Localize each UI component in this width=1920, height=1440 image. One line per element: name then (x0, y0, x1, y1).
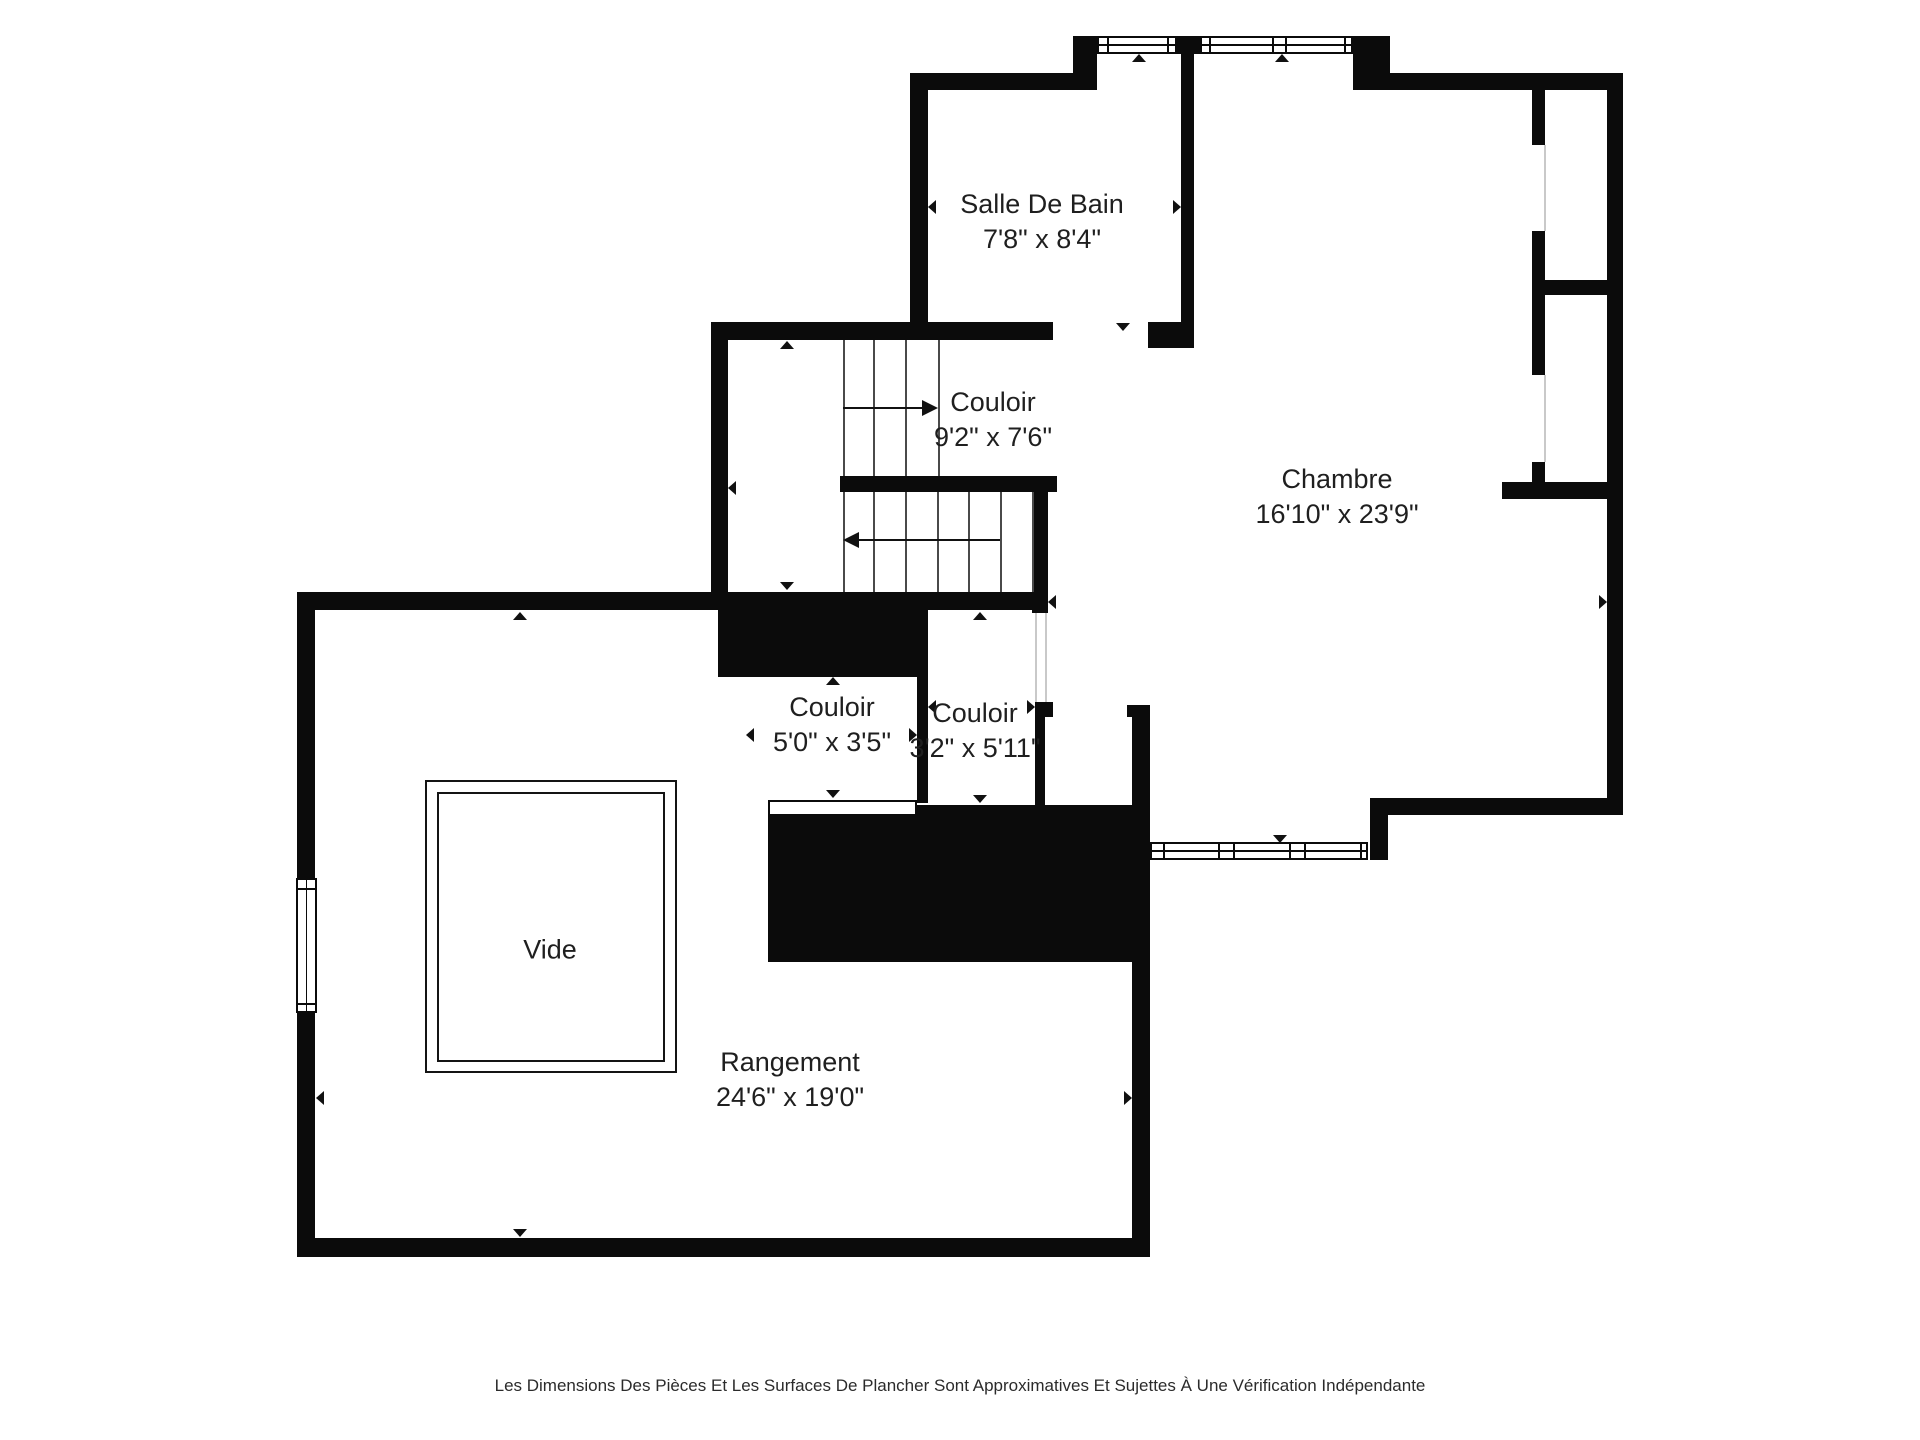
dimension-marker-up (780, 341, 794, 349)
wall (1353, 73, 1623, 90)
window (1150, 842, 1368, 860)
room-label-vide: Vide (523, 933, 577, 968)
room-dimensions: 24'6" x 19'0" (716, 1080, 864, 1115)
window-mullion (298, 1003, 315, 1005)
stair-tread (1000, 492, 1002, 592)
window-mullion (1152, 850, 1366, 852)
room-label-couloir-escalier: Couloir9'2" x 7'6" (934, 385, 1052, 455)
window-mullion (1304, 844, 1306, 858)
window-mullion (1218, 844, 1220, 858)
room-name: Couloir (909, 696, 1040, 731)
window (1097, 36, 1177, 54)
dimension-marker-up (513, 612, 527, 620)
dimension-marker-up (826, 677, 840, 685)
window-mullion (1209, 38, 1211, 52)
stair-direction-line (857, 539, 1000, 541)
room-label-salle-de-bain: Salle De Bain7'8" x 8'4" (960, 187, 1124, 257)
room-name: Chambre (1255, 462, 1418, 497)
dimension-marker-up (1275, 54, 1289, 62)
room-name: Couloir (934, 385, 1052, 420)
door-opening-line (1035, 613, 1037, 702)
room-dimensions: 5'0" x 3'5" (773, 725, 891, 760)
dimension-marker-down (1116, 323, 1130, 331)
wall (718, 605, 928, 677)
dimension-marker-left (1048, 595, 1056, 609)
wall (1502, 482, 1623, 499)
room-name: Rangement (716, 1045, 864, 1080)
wall (1532, 462, 1545, 482)
stair-tread (937, 492, 939, 592)
wall (711, 322, 728, 610)
wall (297, 1238, 1148, 1257)
wall (711, 322, 1053, 340)
room-label-chambre: Chambre16'10" x 23'9" (1255, 462, 1418, 532)
dimension-marker-left (728, 481, 736, 495)
disclaimer-text: Les Dimensions Des Pièces Et Les Surface… (0, 1376, 1920, 1396)
dimension-marker-left (928, 200, 936, 214)
room-label-couloir-centre: Couloir5'0" x 3'5" (773, 690, 891, 760)
wall (1532, 88, 1545, 145)
dimension-marker-down (513, 1229, 527, 1237)
dimension-marker-up (973, 612, 987, 620)
stair-tread (873, 492, 875, 592)
stair-tread (905, 492, 907, 592)
room-dimensions: 16'10" x 23'9" (1255, 497, 1418, 532)
dimension-marker-left (316, 1091, 324, 1105)
room-name: Vide (523, 933, 577, 968)
room-label-couloir-est: Couloir3'2" x 5'11" (909, 696, 1040, 766)
window-mullion (1289, 844, 1291, 858)
wall (768, 805, 1148, 962)
room-dimensions: 9'2" x 7'6" (934, 420, 1052, 455)
window-mullion (1285, 38, 1287, 52)
window-mullion (298, 888, 315, 890)
window-mullion (1202, 44, 1351, 46)
dimension-marker-down (973, 795, 987, 803)
door-opening-line (1544, 375, 1546, 462)
door-opening-line (1045, 613, 1047, 702)
wall (1177, 36, 1200, 54)
dimension-marker-up (1132, 54, 1146, 62)
cased-opening (768, 800, 917, 816)
room-label-rangement: Rangement24'6" x 19'0" (716, 1045, 864, 1115)
window-mullion (1163, 844, 1165, 858)
window-mullion (1099, 44, 1175, 46)
window (1200, 36, 1353, 54)
window-mullion (1167, 38, 1169, 52)
window (296, 878, 317, 1013)
dimension-marker-down (1273, 835, 1287, 843)
window-mullion (1107, 38, 1109, 52)
window-mullion (1344, 38, 1346, 52)
room-name: Couloir (773, 690, 891, 725)
wall (1073, 36, 1097, 90)
wall (1370, 798, 1388, 860)
dimension-marker-left (746, 728, 754, 742)
window-mullion (1233, 844, 1235, 858)
window-mullion (1360, 844, 1362, 858)
stair-direction-line (843, 407, 924, 409)
wall (910, 73, 1073, 90)
dimension-marker-right (1124, 1091, 1132, 1105)
wall (1545, 280, 1610, 295)
wall (910, 73, 928, 340)
dimension-marker-right (1599, 595, 1607, 609)
wall (1388, 798, 1623, 815)
floorplan: Salle De Bain7'8" x 8'4"Couloir9'2" x 7'… (0, 0, 1920, 1440)
door-opening-line (1544, 145, 1546, 231)
wall (840, 476, 1057, 492)
wall (1532, 231, 1545, 375)
room-dimensions: 7'8" x 8'4" (960, 222, 1124, 257)
dimension-marker-down (826, 790, 840, 798)
wall (1132, 705, 1150, 1257)
wall (1181, 54, 1194, 348)
wall (1607, 73, 1623, 815)
dimension-marker-right (1173, 200, 1181, 214)
room-name: Salle De Bain (960, 187, 1124, 222)
vide-outline-inner (437, 792, 665, 1062)
window-mullion (1272, 38, 1274, 52)
window-mullion (306, 880, 308, 1011)
wall (297, 592, 1048, 610)
room-dimensions: 3'2" x 5'11" (909, 731, 1040, 766)
stair-tread (1032, 492, 1034, 592)
stair-tread (968, 492, 970, 592)
dimension-marker-down (780, 582, 794, 590)
stair-direction-arrowhead (843, 532, 859, 548)
